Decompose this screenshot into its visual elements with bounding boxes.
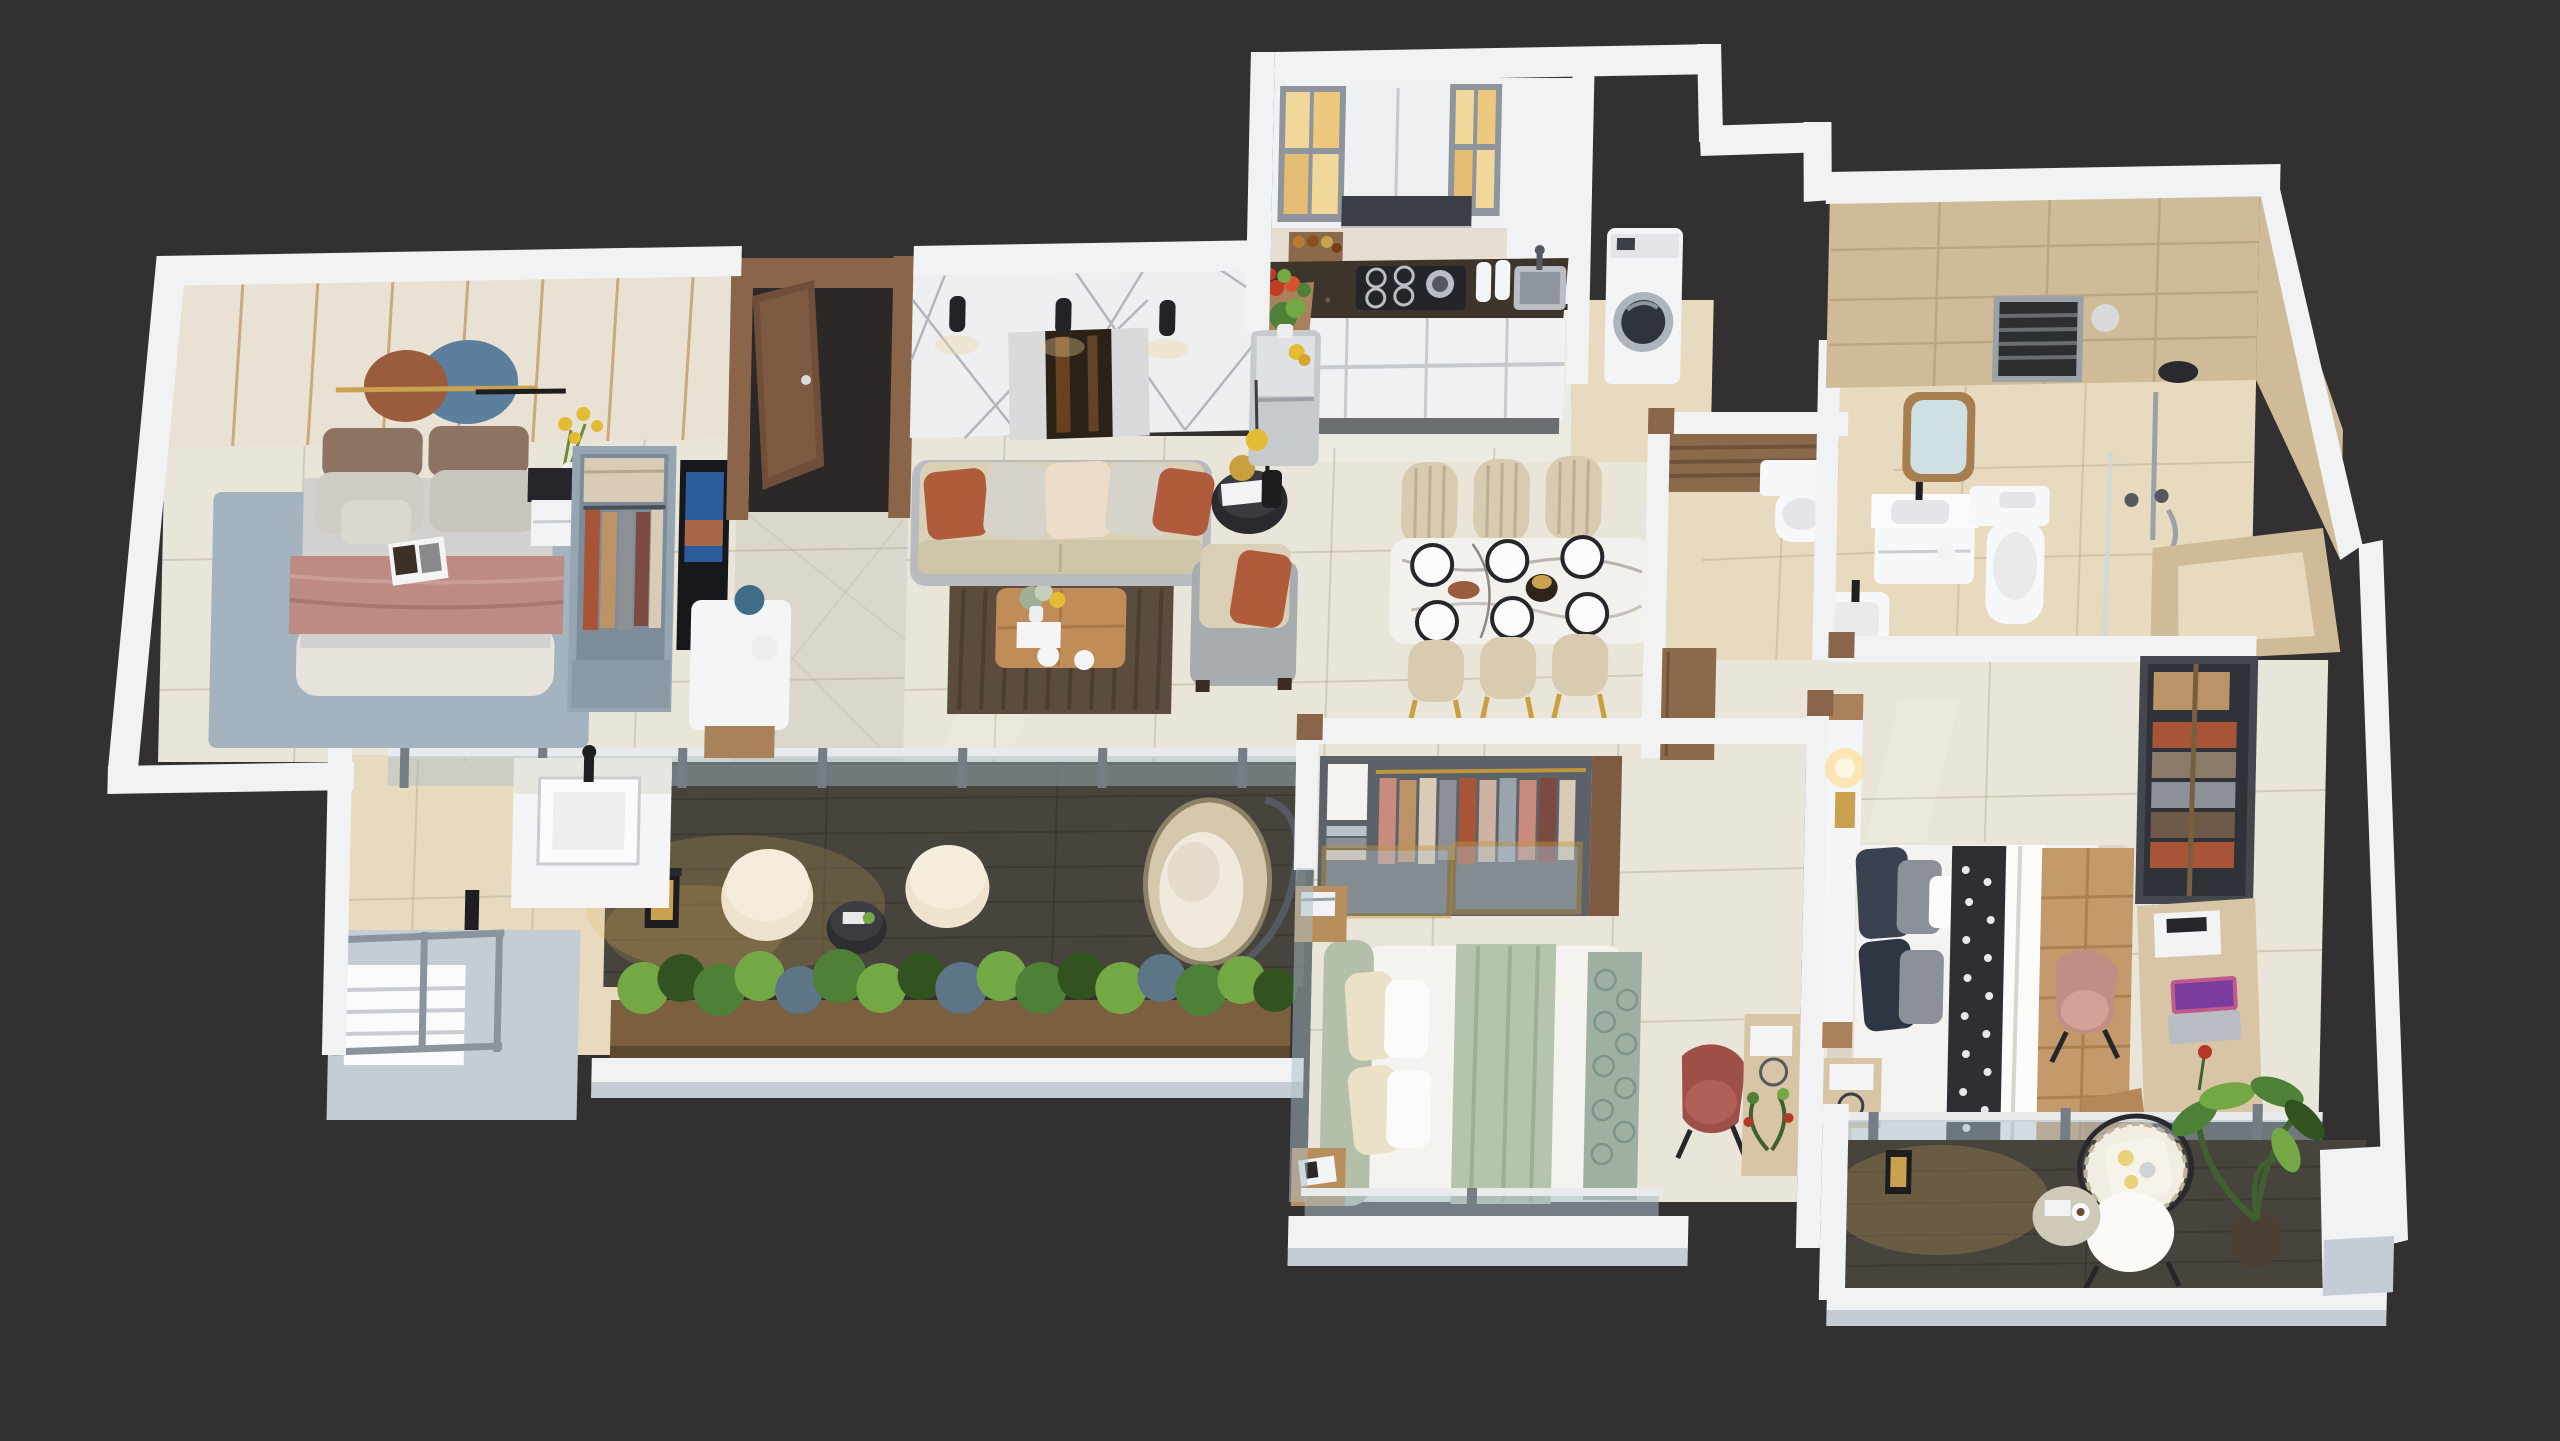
rail-post: [1097, 748, 1107, 788]
dining-chairs-north: [1401, 456, 1603, 546]
bed2-north-wall: [1308, 718, 1814, 744]
gas-stove: [1356, 266, 1467, 310]
bed1-pillow-3: [341, 500, 412, 544]
living-room: [904, 258, 1305, 714]
balcony-south-sill: [591, 1058, 1304, 1084]
bed3-closet: [2135, 656, 2258, 904]
mbath-mirror: [1902, 392, 1976, 482]
bed2-south-sill: [1288, 1216, 1689, 1250]
open-book: [387, 536, 449, 585]
bed2-door-panel: [1589, 756, 1622, 916]
balcony-corner-block: [2317, 1146, 2396, 1296]
mbath-vanity: [1870, 482, 1980, 584]
folded-clothes: [583, 458, 664, 502]
dining-table: [1389, 537, 1653, 644]
console-books: [1750, 1026, 1793, 1056]
floor-plan-render: [0, 0, 2560, 1441]
amber-decor: [1835, 792, 1856, 828]
balcony-south-face: [591, 1082, 1303, 1098]
service-platform: [327, 930, 581, 1120]
glass-cabinet-1: [1277, 86, 1346, 222]
laptop: [2167, 976, 2242, 1045]
rail-post: [957, 748, 967, 788]
rail-post: [1237, 748, 1247, 788]
spice-shelf: [1289, 232, 1344, 262]
bed1-pillow-2: [429, 470, 538, 532]
rail-post: [677, 748, 687, 788]
bed2-south-windows: [1287, 1188, 1689, 1266]
bed2-wardrobe: [1317, 756, 1622, 916]
coffee-tray: [2045, 1200, 2071, 1216]
door-header: [731, 258, 916, 288]
console-plinth: [704, 726, 775, 758]
armchair: [1190, 544, 1299, 692]
rail-post: [399, 748, 409, 788]
hanging-clothes: [581, 507, 666, 630]
toe-kick: [1277, 418, 1559, 434]
washing-machine: [1604, 228, 1683, 384]
mbalcony-west-wall: [1819, 1104, 1849, 1300]
wardrobe-base: [571, 660, 670, 708]
coffee-table: [995, 583, 1127, 670]
bed2: [1319, 940, 1643, 1206]
bed2-west-wall: [1294, 740, 1319, 870]
table-books: [1016, 622, 1061, 648]
entry-door: [726, 256, 916, 520]
bed2-south-face: [1287, 1248, 1687, 1266]
kitchen: [1245, 78, 1578, 466]
sofa-pillow-terracotta: [923, 467, 990, 541]
folded-shirt: [1327, 764, 1368, 820]
bed2-console: [1741, 1014, 1802, 1176]
tv-screen: [684, 472, 724, 562]
gold-glass-sliders: [1323, 844, 1581, 916]
bottle-2: [1495, 260, 1511, 300]
floor-plan-svg: [0, 0, 2560, 1441]
platform-outer-face: [327, 1072, 578, 1120]
bed2-pattern-runner: [1583, 952, 1642, 1200]
bottle-1: [1476, 262, 1492, 302]
planter-row: [610, 949, 1298, 1060]
closet-folded: [2153, 672, 2230, 710]
north-wall-living: [913, 240, 1271, 276]
tv-console: [689, 600, 792, 730]
bed1-sw-ledge: [107, 762, 354, 794]
bed2-pillow-white-2: [1386, 1070, 1432, 1148]
rail-post: [817, 748, 827, 788]
bedroom-1: [158, 266, 798, 758]
sofa-pillow-gray: [982, 462, 1052, 540]
sofa-pillow-cream: [1044, 460, 1112, 539]
wash-faucet: [464, 890, 479, 934]
mbalcony-south-face: [1826, 1310, 2386, 1326]
lamp-shade: [1261, 470, 1282, 508]
sofa-pillow-terracotta-2: [1151, 466, 1217, 537]
bed3-pattern-band: [1946, 846, 2010, 1142]
bed1-wardrobe: [567, 446, 677, 712]
sofa: [910, 460, 1217, 586]
desk-books: [2154, 910, 2221, 957]
bed1-headboard-cushion-2: [428, 426, 529, 476]
bed1-headboard-cushion: [322, 428, 423, 478]
side-table-books: [1221, 480, 1265, 506]
bed2-pillow-white: [1384, 980, 1430, 1058]
planter-box-shadow: [610, 1046, 1290, 1060]
bed3-pillow-gray-2: [1899, 950, 1945, 1024]
